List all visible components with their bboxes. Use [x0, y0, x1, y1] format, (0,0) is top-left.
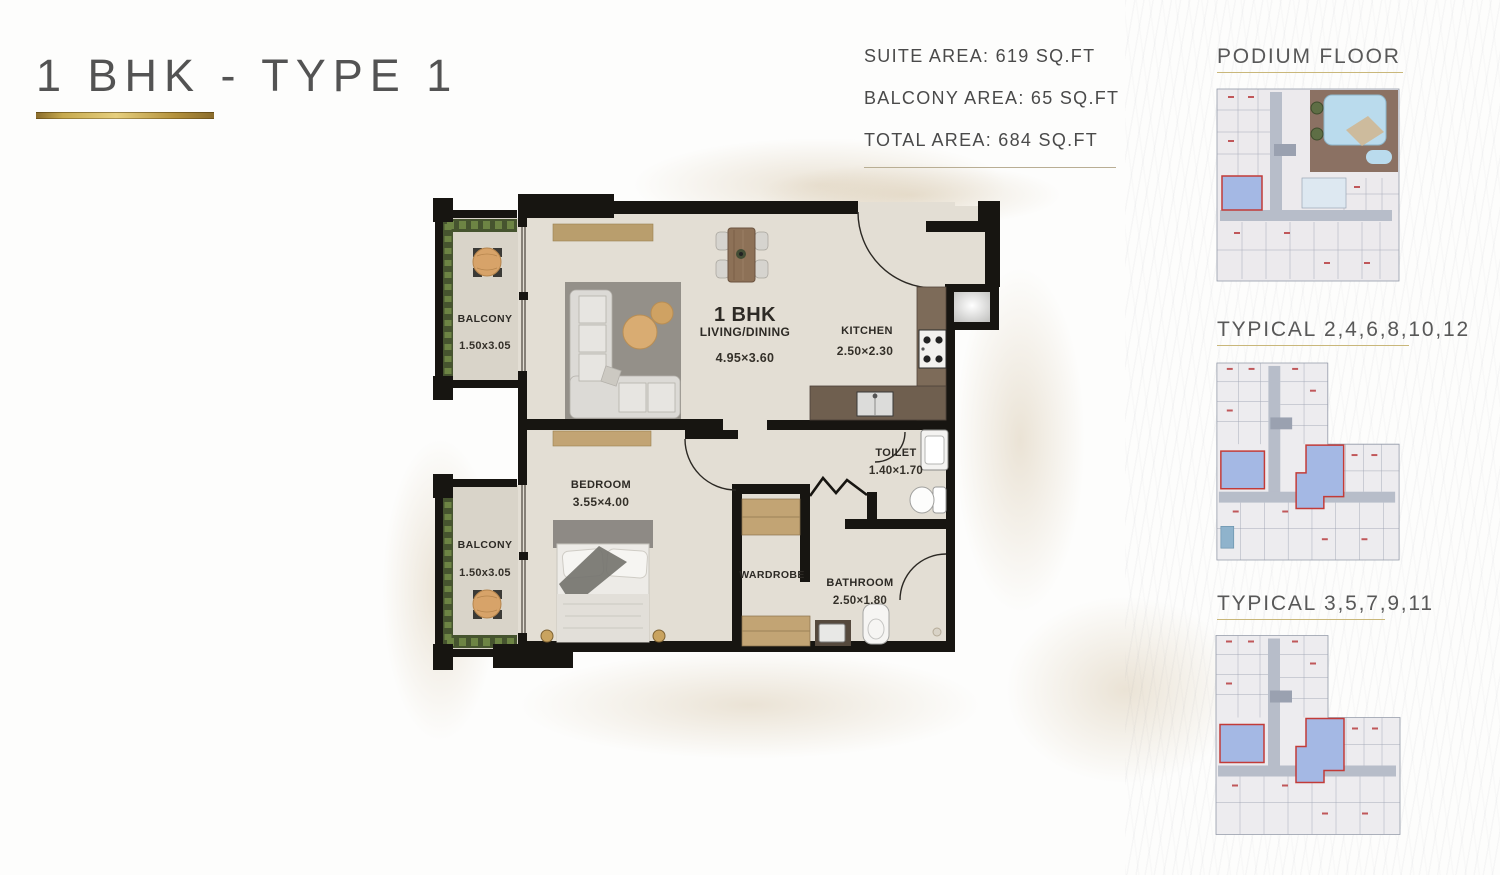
balcony-area-text: BALCONY AREA: 65 SQ.FT [864, 88, 1119, 109]
balcony-top-label: BALCONY [458, 313, 513, 325]
balcony-table-bottom [473, 590, 502, 619]
coffee-table [623, 315, 657, 349]
bedside-lamp [541, 630, 553, 642]
kitchen-label: KITCHEN [841, 325, 893, 337]
area-divider-rule [864, 167, 1116, 168]
mini-corridor [1268, 639, 1280, 769]
mini-corridor [1220, 210, 1392, 221]
gold-underline [36, 112, 214, 119]
suite-area-text: SUITE AREA: 619 SQ.FT [864, 46, 1095, 67]
sidebar-rule [1217, 72, 1403, 73]
mini-plan-typical-even[interactable] [1212, 360, 1404, 563]
mini-stairs [1270, 417, 1292, 429]
bedroom-label: BEDROOM [571, 479, 631, 491]
sidebar-header-podium: PODIUM FLOOR [1217, 45, 1401, 69]
living-dining-dim: 4.95×3.60 [716, 351, 775, 365]
mini-plan-podium-graphic [1214, 86, 1402, 284]
bathroom-label: BATHROOM [826, 577, 893, 589]
sidebar-header-typical-even: TYPICAL 2,4,6,8,10,12 [1217, 318, 1470, 342]
shaft [954, 292, 990, 322]
balcony-bottom-dim: 1.50x3.05 [459, 567, 511, 579]
living-furniture [565, 282, 681, 419]
kitchen-dim: 2.50×2.30 [837, 344, 893, 358]
toilet-dim: 1.40×1.70 [869, 465, 923, 477]
coffee-table [651, 302, 673, 324]
bedroom-dim: 3.55×4.00 [573, 495, 629, 509]
bed [557, 544, 649, 642]
mini-plan-typical-odd-graphic [1212, 629, 1404, 841]
mini-water-feature [1221, 526, 1234, 548]
mini-plan-typical-odd[interactable] [1212, 629, 1404, 841]
wardrobe-label: WARDROBE [739, 569, 805, 581]
stove-icon [919, 330, 946, 368]
sidebar-rule [1217, 345, 1409, 346]
mini-lobby [1302, 178, 1346, 208]
mini-plan-podium[interactable] [1214, 86, 1402, 284]
kitchen-sink-icon [857, 392, 893, 416]
sidebar-rule [1217, 619, 1385, 620]
total-area-text: TOTAL AREA: 684 SQ.FT [864, 130, 1098, 151]
bathroom-dim: 2.50×1.80 [833, 595, 887, 607]
highlighted-unit [1220, 725, 1264, 763]
unit-label: 1 BHK [714, 304, 776, 326]
page-title: 1 BHK - TYPE 1 [36, 50, 458, 102]
brochure-page: 1 BHK - TYPE 1 SUITE AREA: 619 SQ.FT BAL… [0, 0, 1500, 875]
mini-stairs [1270, 691, 1292, 703]
sidebar-header-typical-odd: TYPICAL 3,5,7,9,11 [1217, 592, 1434, 616]
balcony-table-top [473, 248, 502, 277]
balcony-top-dim: 1.50x3.05 [459, 340, 511, 352]
highlighted-unit [1222, 176, 1262, 210]
mini-corridor [1268, 366, 1280, 495]
pool-deck [1310, 90, 1398, 172]
mini-plan-typical-even-graphic [1212, 360, 1404, 563]
floor-plan: BALCONY 1.50x3.05 BALCONY 1.50x3.05 1 BH… [433, 192, 1005, 684]
balcony-bottom-label: BALCONY [458, 539, 513, 551]
bedroom-furniture [541, 520, 665, 642]
mini-stairs [1274, 144, 1296, 156]
highlighted-unit [1221, 451, 1265, 489]
bedside-lamp [653, 630, 665, 642]
toilet-label: TOILET [875, 447, 916, 459]
living-dining-label: LIVING/DINING [700, 325, 791, 339]
